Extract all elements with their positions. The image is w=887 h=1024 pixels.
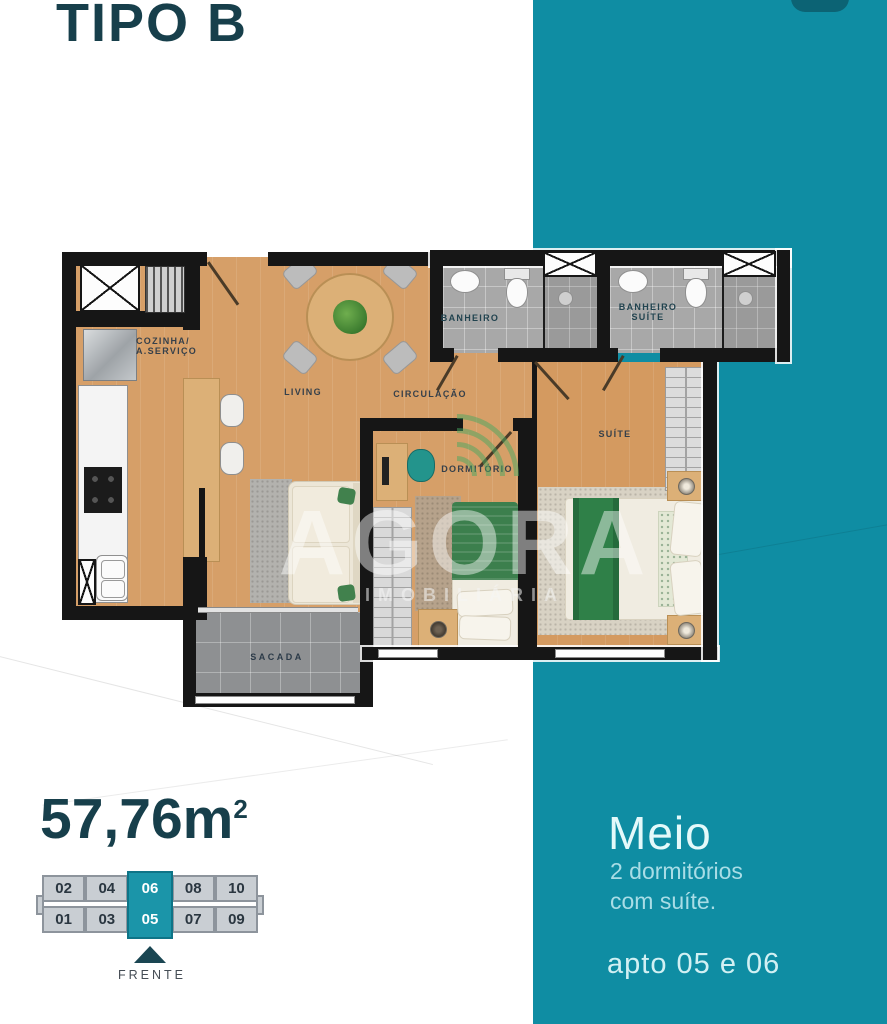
bathroom-suite-line1: BANHEIRO <box>619 302 677 312</box>
shaft-xbox <box>80 264 140 312</box>
shower-head <box>558 291 573 306</box>
watermark-subtitle: IMOBILIÁRIA <box>300 585 630 606</box>
stove <box>84 467 122 513</box>
wall <box>62 252 76 620</box>
highlighted-units: 06 05 <box>127 871 173 939</box>
panel-line2: com suíte. <box>610 888 716 915</box>
shaft-xbox <box>543 251 597 277</box>
unit-cell-10: 10 <box>215 875 258 902</box>
bed-pillow <box>669 500 706 557</box>
flyer-page: TIPO B <box>0 0 887 1024</box>
kitchen-label-line2: A.SERVIÇO <box>136 346 197 356</box>
building-tab-left <box>36 895 44 915</box>
highlighted-unit-06: 06 <box>129 873 171 904</box>
table-lamp <box>678 478 695 495</box>
room-label-bathroom: BANHEIRO <box>428 313 512 323</box>
wall <box>532 362 537 420</box>
unit-cell-01: 01 <box>42 906 85 933</box>
bed-pillow <box>669 559 706 616</box>
table-plant <box>333 300 367 334</box>
kitchen-sink <box>96 555 128 601</box>
shaft-xbox <box>722 251 776 277</box>
panel-heading: Meio <box>608 806 712 860</box>
sink <box>450 270 480 293</box>
panel-apto: apto 05 e 06 <box>607 948 780 981</box>
island-stool <box>220 394 244 427</box>
sink <box>618 270 648 293</box>
building-key: 02 04 08 10 01 03 07 09 06 05 <box>42 875 258 935</box>
window <box>555 649 665 658</box>
unit-area: 57,76m2 <box>40 786 248 852</box>
balcony-railing <box>195 696 355 704</box>
wall <box>777 250 790 362</box>
shower-zone <box>543 265 597 353</box>
shower-glass <box>722 265 724 353</box>
island-stool <box>220 442 244 475</box>
table-lamp <box>430 621 447 638</box>
room-label-kitchen: COZINHA/ A.SERVIÇO <box>136 336 220 356</box>
shower-glass <box>543 265 545 353</box>
room-label-balcony: SACADA <box>228 652 326 662</box>
panel-line1: 2 dormitórios <box>610 858 743 885</box>
band-top-tab <box>791 0 849 12</box>
wall <box>76 311 186 327</box>
bathroom-suite-line2: SUÍTE <box>631 312 664 322</box>
unit-cell-02: 02 <box>42 875 85 902</box>
bed-pillow <box>459 615 512 641</box>
shaft-xbox <box>78 559 96 605</box>
unit-cell-09: 09 <box>215 906 258 933</box>
watermark-brand: AGORA <box>270 497 660 589</box>
room-label-suite: SUÍTE <box>572 429 658 439</box>
wall <box>268 252 443 266</box>
wall <box>660 348 790 362</box>
building-tab-right <box>256 895 264 915</box>
sink-basin <box>101 560 125 579</box>
wall <box>430 250 443 362</box>
fridge <box>83 329 137 381</box>
unit-cell-03: 03 <box>85 906 128 933</box>
front-arrow-icon <box>134 946 166 963</box>
area-value: 57,76m <box>40 787 233 851</box>
unit-cell-07: 07 <box>172 906 215 933</box>
desk-monitor <box>382 457 389 485</box>
page-title: TIPO B <box>56 0 248 54</box>
room-label-circulation: CIRCULAÇÃO <box>380 389 480 399</box>
front-label: FRENTE <box>92 968 212 982</box>
wall <box>62 606 198 620</box>
highlighted-unit-05: 05 <box>129 904 171 935</box>
unit-cell-04: 04 <box>85 875 128 902</box>
louver-vent <box>145 266 185 313</box>
balcony-slider-door <box>198 607 358 613</box>
room-label-living: LIVING <box>260 387 346 397</box>
kitchen-label-line1: COZINHA/ <box>136 336 190 346</box>
area-superscript: 2 <box>233 794 247 824</box>
floor-plan: COZINHA/ A.SERVIÇO LIVING CIRCULAÇÃO BAN… <box>60 245 790 715</box>
sink-basin <box>101 580 125 598</box>
unit-cell-08: 08 <box>172 875 215 902</box>
shower-head <box>738 291 753 306</box>
wall <box>703 352 717 660</box>
room-label-bathroom-suite: BANHEIRO SUÍTE <box>605 302 691 322</box>
toilet-bowl <box>506 278 528 308</box>
table-lamp <box>678 622 695 639</box>
window <box>378 649 438 658</box>
shower-zone <box>722 265 777 353</box>
